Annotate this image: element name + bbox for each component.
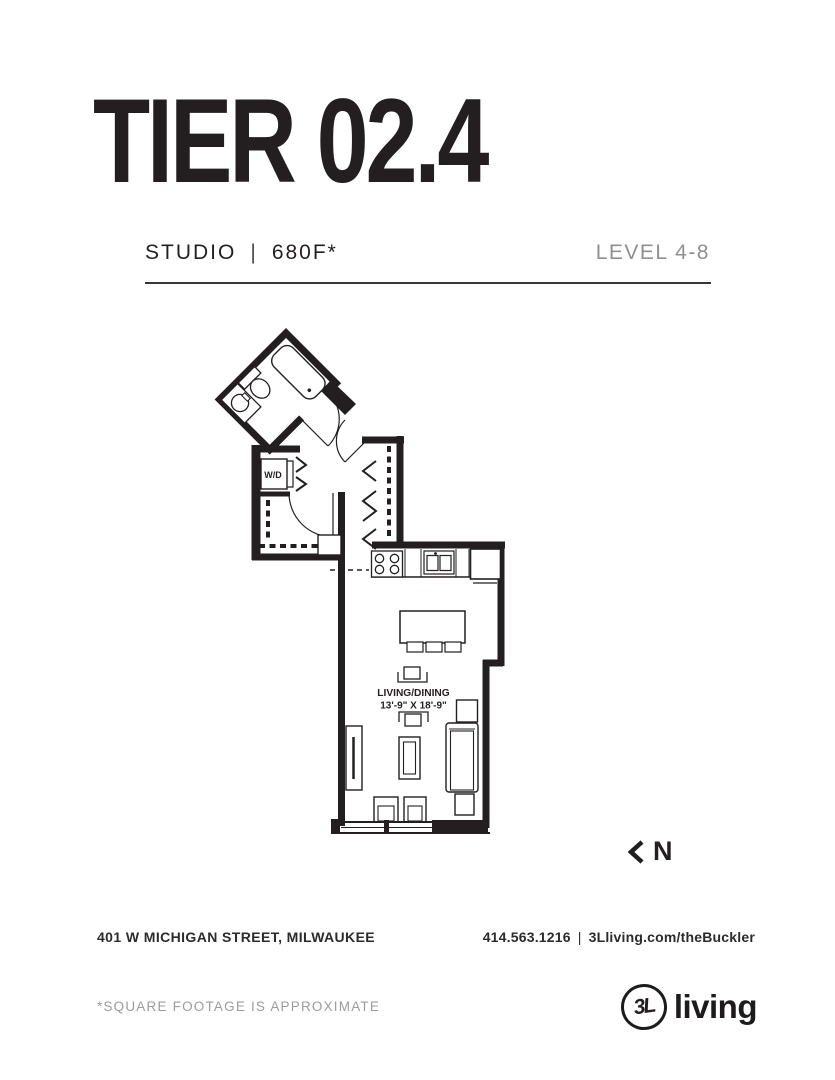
property-address: 401 W MICHIGAN STREET, MILWAUKEE — [97, 929, 375, 945]
bifold-door-icon — [296, 457, 306, 491]
floorplan-sheet: TIER 02.4 STUDIO|680F* LEVEL 4-8 — [0, 0, 835, 1080]
dining-chair — [445, 642, 461, 652]
unit-type: STUDIO — [145, 241, 236, 264]
coffee-table — [399, 737, 420, 779]
north-letter: N — [653, 836, 673, 867]
dining-chair — [426, 642, 442, 652]
page-title: TIER 02.4 — [93, 81, 486, 201]
linen-closet — [259, 493, 341, 555]
contact-separator: | — [578, 929, 582, 945]
summary-separator: | — [250, 241, 257, 264]
bathroom — [220, 333, 337, 450]
hanging-rod-icon — [363, 461, 376, 549]
contact-info: 414.563.1216|3Lliving.com/theBuckler — [483, 929, 755, 945]
lounge-chair — [374, 797, 398, 822]
side-table — [457, 700, 478, 722]
accent-chair-top — [398, 667, 427, 682]
washer-dryer-closet: W/D — [261, 457, 306, 491]
website: 3Lliving.com/theBuckler — [589, 929, 755, 945]
wd-label: W/D — [264, 470, 282, 480]
level-range: LEVEL 4-8 — [596, 241, 710, 265]
side-table — [455, 794, 474, 815]
kitchen-sink — [424, 551, 454, 574]
kitchen — [330, 549, 501, 583]
room-label: LIVING/DINING — [377, 688, 450, 699]
unit-summary: STUDIO|680F* — [145, 241, 338, 265]
accent-chair-bottom — [399, 712, 428, 726]
floor-plan: W/D — [200, 320, 540, 850]
north-indicator: N — [628, 836, 673, 867]
sofa-bed — [446, 723, 478, 792]
dining-chair — [407, 642, 423, 652]
logo-wordmark: living — [674, 988, 757, 1026]
dining-table — [400, 611, 465, 652]
logo-mark-icon: 3L — [618, 981, 670, 1033]
hall-closet — [363, 446, 389, 549]
entry-door-arc — [336, 420, 366, 462]
refrigerator — [471, 549, 501, 583]
header-divider — [145, 282, 711, 284]
window-wall — [331, 819, 490, 834]
brand-logo: 3L living — [621, 984, 757, 1030]
unit-area: 680F* — [272, 241, 338, 264]
room-dimensions: 13'-9" X 18'-9" — [380, 701, 447, 712]
north-arrow-icon — [628, 840, 644, 864]
living-room: LIVING/DINING 13'-9" X 18'-9" — [346, 611, 478, 822]
sqft-disclaimer: *SQUARE FOOTAGE IS APPROXIMATE — [97, 999, 380, 1014]
lounge-chair — [404, 797, 426, 822]
media-credenza — [346, 726, 362, 790]
phone-number: 414.563.1216 — [483, 929, 571, 945]
stove — [372, 551, 403, 577]
